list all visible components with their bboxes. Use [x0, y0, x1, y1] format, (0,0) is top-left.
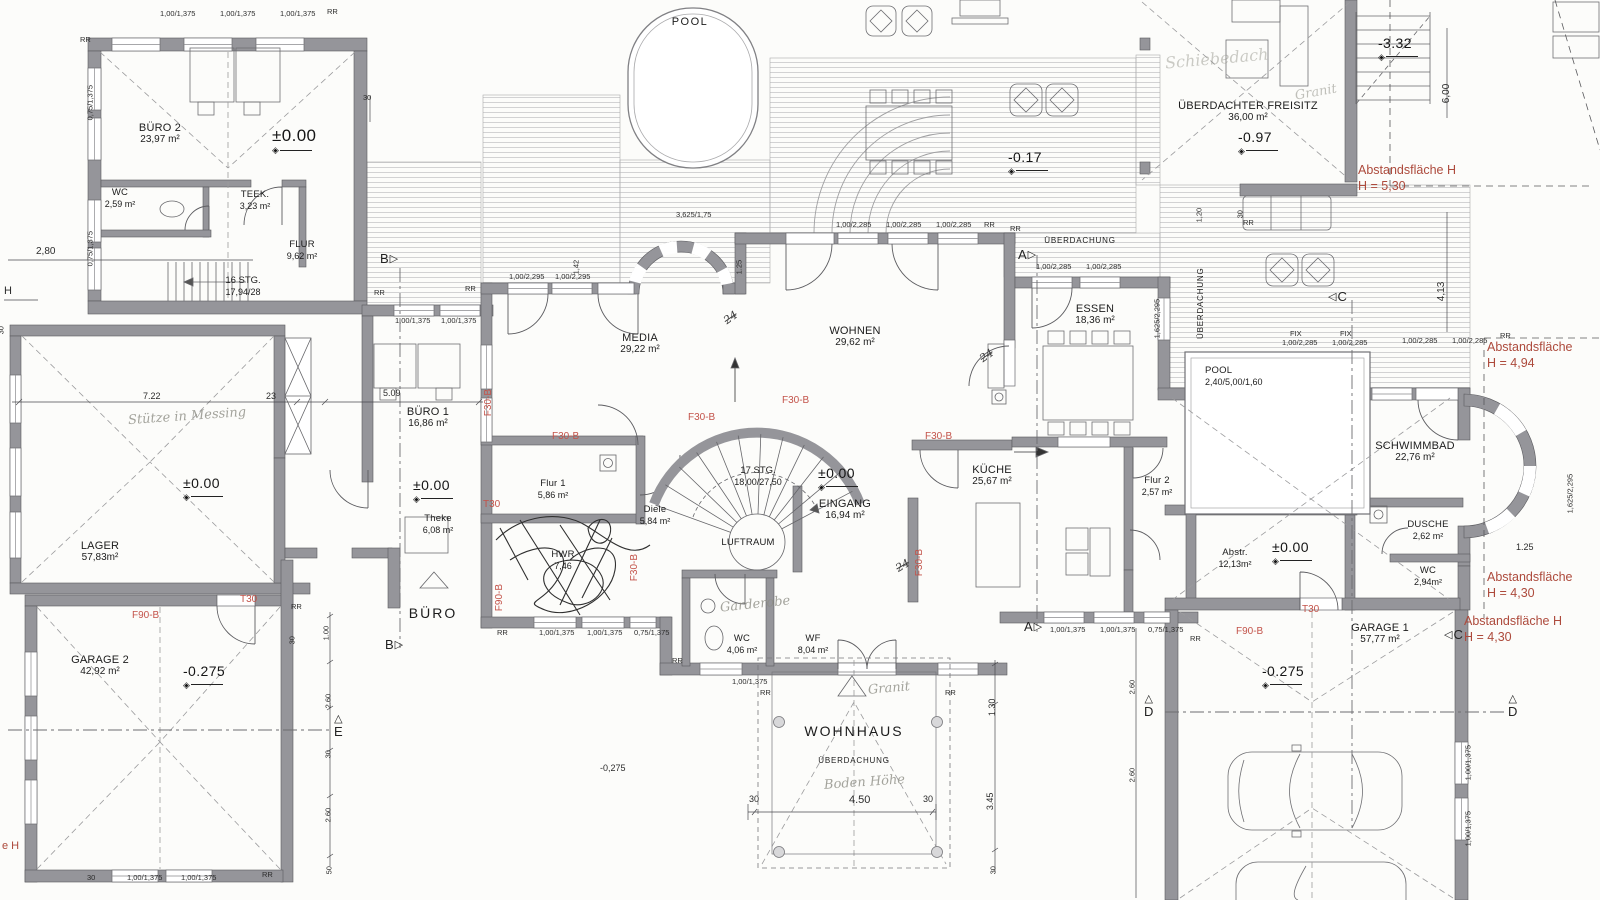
room-name: WC [727, 634, 758, 645]
dim-label: RR [1010, 225, 1021, 233]
room-area: 4,06 m² [727, 645, 758, 655]
room-name: Abstr. [1218, 548, 1251, 559]
room-label-teek: TEEK.3,23 m² [240, 190, 271, 211]
room-label-lager: LAGER57,83m² [81, 540, 119, 564]
room-label-schwimmbad: SCHWIMMBAD22,76 m² [1375, 440, 1455, 464]
dim-label: 5.09 [383, 388, 401, 398]
room-area: 9,62 m² [287, 251, 318, 261]
room-label-pool-indoor: POOL2,40/5,00/1,60 [1205, 366, 1263, 387]
dim-label: 1,00/2,285 [1036, 263, 1071, 271]
entry-triangle-porch [838, 676, 866, 696]
dim-label: 50 [326, 866, 334, 874]
stair-count: 16 STG. [225, 276, 260, 287]
dim-label: RR [374, 289, 385, 297]
label-outdoor-pool: POOL [672, 16, 709, 28]
fire-label-f30: F30-B [688, 412, 715, 423]
room-label-luftraum: LUFTRAUM [721, 538, 774, 549]
room-name: FLUR [287, 240, 318, 251]
section-marker-b-bottom: B▷ [385, 638, 403, 653]
stair-dims: 17,94/28 [225, 287, 260, 297]
setback-label-2: AbstandsflächeH = 4,94 [1487, 340, 1572, 371]
room-name: WC [1414, 566, 1442, 577]
setback-label-4: Abstandsfläche HH = 4,30 [1464, 614, 1562, 645]
fire-label-f90: F90-B [1236, 626, 1263, 637]
dim-label: 1,00/2,285 [1452, 337, 1487, 345]
dim-label: 30 [749, 794, 759, 804]
room-area: 7,46 [551, 561, 574, 571]
room-label-wc-buero2: WC2,59 m² [105, 188, 136, 209]
dim-label: 1,00/2,285 [936, 221, 971, 229]
room-name: MEDIA [620, 332, 659, 344]
fire-label-f30: F30-B [483, 389, 494, 416]
room-name: GARAGE 2 [71, 654, 129, 666]
fire-label-t30: T30 [483, 499, 500, 510]
label-ueberdachung-porch: ÜBERDACHUNG [818, 757, 889, 766]
room-name: GARAGE 1 [1351, 622, 1409, 634]
stair-count: 17 STG. [734, 466, 782, 477]
dim-label: 1,00/1,375 [220, 10, 255, 18]
room-label-abstellraum: Abstr.12,13m² [1218, 548, 1251, 569]
dim-label: 4,13 [1436, 282, 1447, 301]
section-marker-b-top: B▷ [380, 252, 398, 267]
label-ueberdachung-vertical: ÜBERDACHUNG [1197, 267, 1206, 338]
room-area: 57,77 m² [1351, 634, 1409, 645]
room-name: LUFTRAUM [721, 538, 774, 549]
room-name: LAGER [81, 540, 119, 552]
dim-label: 6,00 [1441, 84, 1452, 103]
dim-label: RR [262, 871, 273, 879]
fire-label-f90: F90-B [494, 584, 505, 611]
dim-label: 1,42 [573, 260, 581, 275]
room-name: Flur 1 [538, 479, 569, 490]
room-area: 42,92 m² [71, 666, 129, 677]
level-garden: -3.32◈ [1378, 36, 1418, 62]
room-area: 16,86 m² [407, 418, 449, 429]
dim-label: 2.60 [325, 694, 333, 709]
level-theke: ±0.00◈ [413, 478, 453, 504]
room-area: 22,76 m² [1375, 452, 1455, 463]
section-marker-c-top: ◁C [1328, 290, 1347, 305]
room-name: Flur 2 [1142, 476, 1173, 487]
room-name: EINGANG [819, 498, 871, 510]
section-marker-a-bottom: A▷ [1024, 620, 1042, 635]
dim-label: 0,75/1,375 [87, 85, 95, 120]
room-name: SCHWIMMBAD [1375, 440, 1455, 452]
dim-label: 30 [0, 326, 6, 334]
toilet-wc [705, 626, 723, 650]
dim-label: 1,00/1,375 [395, 317, 430, 325]
setback-label-1: Abstandsfläche HH = 5,30 [1358, 163, 1456, 194]
dim-label: RR [1243, 219, 1254, 227]
room-area: 16,94 m² [819, 510, 871, 521]
level-terrace: -0.17◈ [1008, 150, 1048, 176]
basin-wc [701, 599, 715, 613]
room-area: 8,04 m² [798, 645, 829, 655]
room-name: KÜCHE [972, 464, 1012, 476]
dim-label: H [4, 285, 12, 297]
room-name: WF [798, 634, 829, 645]
dim-label: 1.30 [987, 699, 997, 717]
dim-label: 1.25 [1516, 542, 1534, 552]
room-area: 23,97 m² [139, 134, 181, 145]
room-name: Diele [640, 505, 671, 516]
dim-label: 2,80 [36, 246, 55, 257]
dim-label: 30 [923, 794, 933, 804]
level-eingang: ±0.00◈ [818, 466, 858, 492]
room-area: 5,84 m² [640, 516, 671, 526]
room-name: DUSCHE [1407, 520, 1448, 531]
dim-label: 1,00/1,375 [280, 10, 315, 18]
level-buero2: ±0.00◈ [272, 126, 316, 155]
room-area: 2,94m² [1414, 577, 1442, 587]
level-lager: ±0.00◈ [183, 476, 223, 502]
car-1 [1228, 745, 1402, 837]
label-wohnhaus: WOHNHAUS [804, 724, 903, 740]
room-name: HWR [551, 550, 574, 561]
corner-sofa-upper-right [1553, 2, 1599, 58]
room-name: Theke [423, 514, 454, 525]
room-area: 2,40/5,00/1,60 [1205, 377, 1263, 387]
fire-label-f30: F30-B [914, 549, 925, 576]
floor-plan-canvas [0, 0, 1600, 900]
section-marker-e: △E [334, 714, 343, 738]
dim-label: RR [327, 8, 338, 16]
dim-label: RR [984, 221, 995, 229]
dim-label: 1,625/2,295 [1567, 474, 1575, 514]
dim-label: RR [672, 657, 683, 665]
level-garage2: -0.275◈ [183, 664, 225, 690]
washbasin [160, 201, 184, 217]
dim-label: RR [497, 629, 508, 637]
room-label-flur: FLUR9,62 m² [287, 240, 318, 261]
room-label-flur2: Flur 22,57 m² [1142, 476, 1173, 497]
room-label-garage2: GARAGE 242,92 m² [71, 654, 129, 678]
room-name: POOL [1205, 366, 1263, 377]
room-label-eingang: EINGANG16,94 m² [819, 498, 871, 522]
dim-label: RR [760, 689, 771, 697]
dim-label: 2.60 [325, 808, 333, 823]
dim-label: 1,20 [1196, 208, 1204, 223]
dim-label: 30 [363, 94, 371, 102]
dim-label: 7.22 [143, 391, 161, 401]
floor-plan: BÜRO 223,97 m² WC2,59 m² TEEK.3,23 m² FL… [0, 0, 1600, 900]
room-label-wohnen: WOHNEN29,62 m² [829, 325, 880, 349]
kitchen-appliances [1066, 528, 1110, 576]
dim-label: 1.25 [736, 260, 744, 275]
section-marker-d-right: △D [1508, 694, 1517, 718]
fire-label-t30: T30 [240, 594, 257, 605]
room-label-buero2: BÜRO 223,97 m² [139, 122, 181, 146]
dim-label: 1,00/1,375 [127, 874, 162, 882]
dim-label: RR [291, 603, 302, 611]
dim-label: 4.50 [849, 794, 870, 806]
dim-label: RR [1500, 332, 1511, 340]
stair-dims: 18,00/27,50 [734, 477, 782, 487]
dim-label: 1,00/1,375 [1465, 811, 1473, 846]
room-name: BÜRO 2 [139, 122, 181, 134]
section-marker-d-left: △D [1144, 694, 1153, 718]
dim-label: RR [1190, 635, 1201, 643]
heater-wohnen [992, 390, 1006, 404]
dim-label: 1,00/2,285 [886, 221, 921, 229]
dim-label: RR [465, 285, 476, 293]
level-abstellraum: ±0.00◈ [1272, 540, 1312, 566]
outdoor-pool [628, 8, 758, 168]
dim-label: RR [80, 36, 91, 44]
dim-label: 3,625/1,75 [676, 211, 711, 219]
room-area: 36,00 m² [1178, 112, 1318, 123]
shower-symbol [1370, 506, 1387, 523]
room-area: 2,62 m² [1407, 531, 1448, 541]
dim-label: 3.45 [985, 793, 995, 811]
stair-label-buero: 16 STG.17,94/28 [225, 276, 260, 297]
fire-label-f90: F90-B [132, 610, 159, 621]
room-label-dusche: DUSCHE2,62 m² [1407, 520, 1448, 541]
dim-label: 0,75/1,375 [1148, 626, 1183, 634]
dim-label: 0,75/1,375 [87, 231, 95, 266]
label-buero: BÜRO [409, 606, 457, 622]
setback-fragment-left: e H [2, 840, 19, 852]
kitchen-island [976, 503, 1020, 587]
section-marker-c-bottom: ◁C [1444, 628, 1463, 643]
room-area: 25,67 m² [972, 476, 1012, 487]
dim-label: 30 [990, 866, 998, 874]
desks-buero2 [190, 48, 280, 115]
entry-triangle-buero [420, 572, 448, 588]
dim-label: 1,00/1,375 [732, 678, 767, 686]
entry-arrow [731, 358, 739, 368]
dim-label: 23 [266, 391, 276, 401]
dim-label: 1.00 [323, 626, 331, 641]
dim-label: 2.60 [1129, 768, 1137, 783]
dim-label: 1,00/1,375 [1050, 626, 1085, 634]
heater-media [600, 455, 616, 471]
fire-label-f30: F30-B [552, 431, 579, 442]
room-label-kueche: KÜCHE25,67 m² [972, 464, 1012, 488]
level-freisitz: -0.97◈ [1238, 130, 1278, 156]
dim-label: 1,00/1,375 [1100, 626, 1135, 634]
room-label-garage1: GARAGE 157,77 m² [1351, 622, 1409, 646]
dim-label: 0,75/1,375 [634, 629, 669, 637]
dim-label: 1,00/1,375 [441, 317, 476, 325]
room-label-wc-eg: WC4,06 m² [727, 634, 758, 655]
dim-label: 1,00/2,285 [1282, 339, 1317, 347]
room-label-wf: WF8,04 m² [798, 634, 829, 655]
room-name: WOHNEN [829, 325, 880, 337]
label-ueberdachung-essen: ÜBERDACHUNG [1044, 237, 1115, 246]
fire-label-f30: F30-B [629, 554, 640, 581]
fire-label-t30: T30 [1302, 604, 1319, 615]
car-2 [1236, 862, 1406, 900]
setback-label-3: AbstandsflächeH = 4,30 [1487, 570, 1572, 601]
dim-label: 1,625/2,295 [1154, 299, 1162, 339]
room-label-diele: Diele5,84 m² [640, 505, 671, 526]
dim-label: 1,00/2,285 [836, 221, 871, 229]
room-label-media: MEDIA29,22 m² [620, 332, 659, 356]
room-name: TEEK. [240, 190, 271, 201]
room-area: 5,86 m² [538, 490, 569, 500]
dim-label: 1,00/1,375 [539, 629, 574, 637]
dim-label: 1,00/2,285 [1402, 337, 1437, 345]
room-label-wc-pool: WC2,94m² [1414, 566, 1442, 587]
room-label-flur1: Flur 15,86 m² [538, 479, 569, 500]
stair-label-main: 17 STG.18,00/27,50 [734, 466, 782, 487]
room-area: 12,13m² [1218, 559, 1251, 569]
dim-label: 30 [325, 750, 333, 758]
room-name: WC [105, 188, 136, 199]
level-porch: -0,275 [600, 763, 626, 773]
dim-label: 1,00/2,295 [509, 273, 544, 281]
dim-label: 30 [87, 874, 95, 882]
room-area: 3,23 m² [240, 201, 271, 211]
room-name: BÜRO 1 [407, 406, 449, 418]
room-area: 2,59 m² [105, 199, 136, 209]
room-label-buero1: BÜRO 116,86 m² [407, 406, 449, 430]
level-garage1: -0.275◈ [1262, 664, 1304, 690]
room-area: 29,62 m² [829, 337, 880, 348]
dim-label: 1,00/2,285 [1332, 339, 1367, 347]
section-marker-a-top: A▷ [1018, 248, 1036, 263]
room-area: 2,57 m² [1142, 487, 1173, 497]
fire-label-f30: F30-B [925, 431, 952, 442]
dim-label: 30 [289, 636, 297, 644]
fire-label-f30: F30-B [782, 395, 809, 406]
flow-arrow [1036, 447, 1048, 457]
room-label-essen: ESSEN18,36 m² [1075, 303, 1114, 327]
dining-table-essen [1043, 331, 1133, 435]
dim-label: 1,00/2,285 [1086, 263, 1121, 271]
dim-label: 1,00/1,375 [1465, 745, 1473, 780]
room-label-hwr: HWR7,46 [551, 550, 574, 571]
room-name: ESSEN [1075, 303, 1114, 315]
dim-label: 1,00/1,375 [160, 10, 195, 18]
dim-label: 1,00/1,375 [181, 874, 216, 882]
room-area: 18,36 m² [1075, 315, 1114, 326]
dim-label: RR [945, 689, 956, 697]
room-area: 29,22 m² [620, 344, 659, 355]
room-area: 57,83m² [81, 552, 119, 563]
room-area: 6,08 m² [423, 525, 454, 535]
room-label-theke: Theke6,08 m² [423, 514, 454, 535]
dim-label: 1,00/1,375 [587, 629, 622, 637]
dim-label: 2.60 [1129, 680, 1137, 695]
